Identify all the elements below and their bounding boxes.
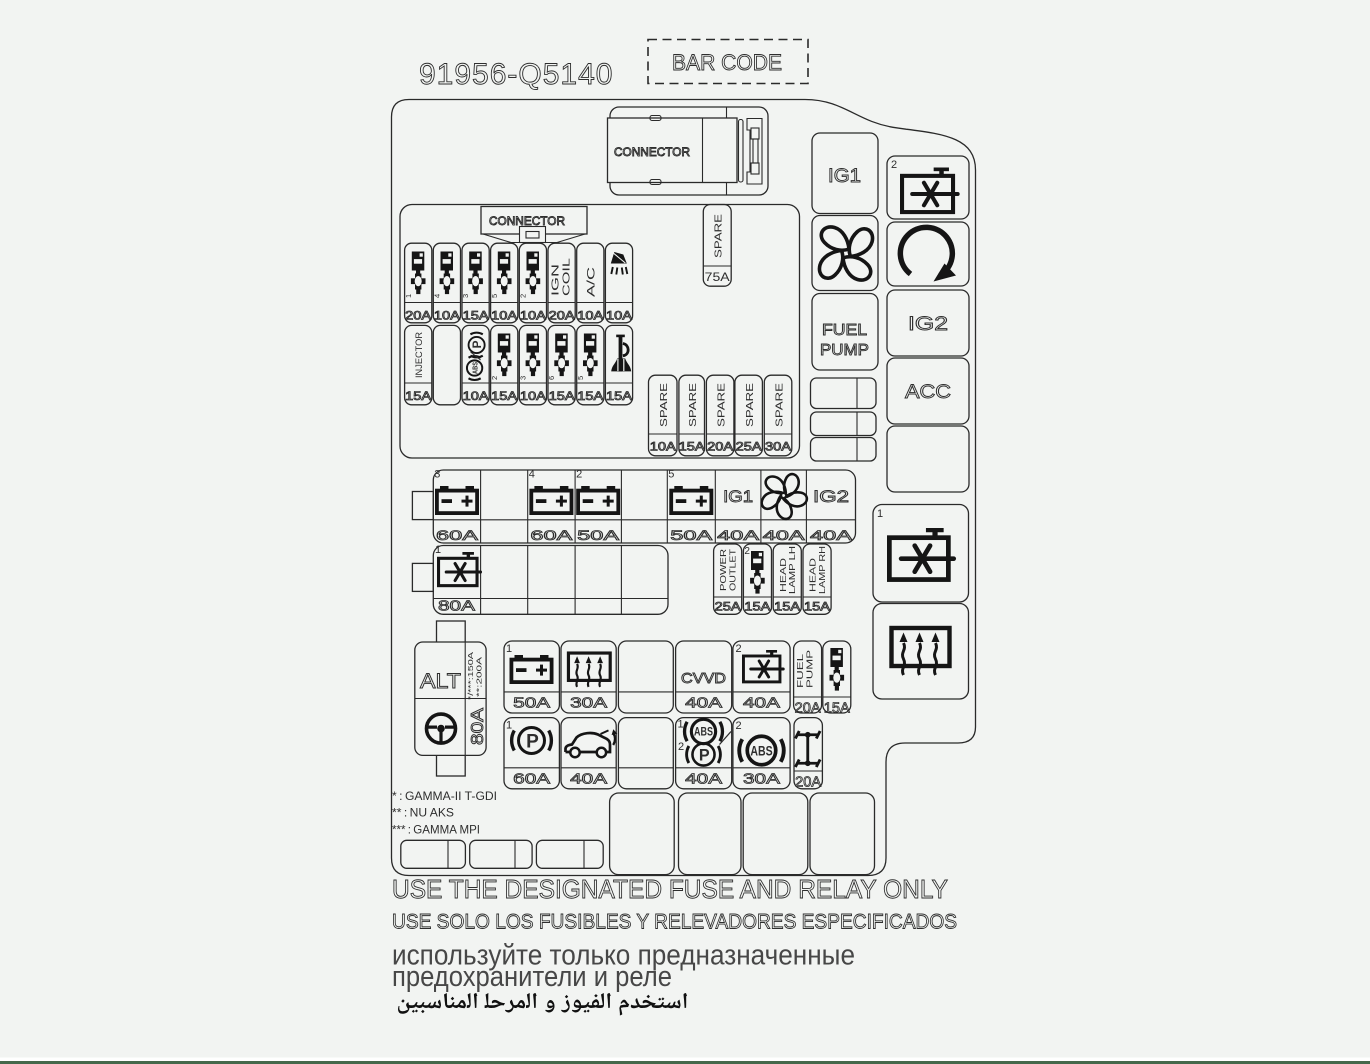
svg-text:2: 2 <box>736 720 742 732</box>
svg-text:25A: 25A <box>736 442 762 454</box>
svg-text:IG1: IG1 <box>828 166 861 187</box>
svg-text:80A: 80A <box>438 599 475 615</box>
svg-text:15A: 15A <box>804 602 830 614</box>
svg-text:50A: 50A <box>577 527 620 543</box>
svg-text:20A: 20A <box>549 311 575 323</box>
svg-text:1: 1 <box>435 544 441 556</box>
svg-text:SPARE: SPARE <box>687 383 699 427</box>
svg-text:30A: 30A <box>743 771 780 787</box>
svg-text:15A: 15A <box>491 391 517 403</box>
svg-text:60A: 60A <box>436 527 479 543</box>
svg-text:15A: 15A <box>463 311 489 323</box>
svg-text:COIL: COIL <box>562 257 573 296</box>
svg-text:CONNECTOR: CONNECTOR <box>614 145 690 159</box>
svg-text:IG2: IG2 <box>908 314 948 335</box>
svg-text:60A: 60A <box>530 527 573 543</box>
svg-text:40A: 40A <box>717 527 760 543</box>
svg-text:5: 5 <box>576 376 585 380</box>
svg-text:3: 3 <box>461 294 470 298</box>
svg-text:15A: 15A <box>744 602 770 614</box>
svg-text:15A: 15A <box>679 442 705 454</box>
svg-text:1: 1 <box>506 643 512 655</box>
svg-text:4: 4 <box>433 294 442 298</box>
svg-text:USE THE DESIGNATED FUSE AND RE: USE THE DESIGNATED FUSE AND RELAY ONLY <box>392 874 948 904</box>
svg-text:2: 2 <box>519 294 528 298</box>
svg-text:40A: 40A <box>685 771 722 787</box>
svg-text:2: 2 <box>678 741 684 753</box>
svg-text:* : GAMMA-II T-GDI: * : GAMMA-II T-GDI <box>392 791 497 803</box>
svg-text:2: 2 <box>490 376 499 380</box>
svg-text:40A: 40A <box>743 695 780 711</box>
svg-text:10A: 10A <box>606 311 632 323</box>
svg-text:HEAD: HEAD <box>808 558 818 592</box>
svg-text:40A: 40A <box>763 527 806 543</box>
svg-text:15A: 15A <box>577 391 603 403</box>
svg-text:FUEL: FUEL <box>822 322 867 339</box>
svg-text:POWER: POWER <box>718 549 728 591</box>
svg-text:30A: 30A <box>765 442 791 454</box>
svg-text:** : NU AKS: ** : NU AKS <box>392 808 454 820</box>
svg-text:20A: 20A <box>405 311 431 323</box>
svg-text:1: 1 <box>404 294 413 298</box>
svg-text:2: 2 <box>891 159 897 171</box>
svg-text:A/C: A/C <box>585 267 597 297</box>
svg-text:25A: 25A <box>715 602 741 614</box>
svg-text:10A: 10A <box>650 442 676 454</box>
svg-text:60A: 60A <box>513 771 550 787</box>
svg-text:10A: 10A <box>520 311 546 323</box>
svg-text:15A: 15A <box>606 391 632 403</box>
svg-text:2: 2 <box>576 469 582 481</box>
svg-text:**:200A: **:200A <box>475 657 484 697</box>
svg-text:CONNECTOR: CONNECTOR <box>489 214 565 228</box>
svg-text:CVVD: CVVD <box>681 671 726 687</box>
svg-text:SPARE: SPARE <box>744 383 756 427</box>
svg-text:SPARE: SPARE <box>658 383 670 427</box>
svg-text:1: 1 <box>678 719 684 731</box>
svg-text:IG1: IG1 <box>723 487 753 506</box>
svg-text:SPARE: SPARE <box>716 383 728 427</box>
svg-text:1: 1 <box>877 508 883 520</box>
svg-text:5: 5 <box>490 294 499 298</box>
svg-text:INJECTOR: INJECTOR <box>414 331 424 378</box>
svg-text:2: 2 <box>736 643 742 655</box>
svg-text:SPARE: SPARE <box>713 214 725 258</box>
svg-text:FUEL: FUEL <box>795 654 805 688</box>
svg-text:91956-Q5140: 91956-Q5140 <box>419 58 614 91</box>
svg-text:50A: 50A <box>670 527 713 543</box>
svg-text:USE SOLO LOS FUSIBLES Y RELEVA: USE SOLO LOS FUSIBLES Y RELEVADORES ESPE… <box>392 911 957 934</box>
svg-text:20A: 20A <box>795 775 821 791</box>
svg-text:10A: 10A <box>520 391 546 403</box>
svg-text:*** : GAMMA MPI: *** : GAMMA MPI <box>392 825 480 837</box>
svg-text:10A: 10A <box>577 311 603 323</box>
svg-text:15A: 15A <box>774 602 800 614</box>
svg-text:20A: 20A <box>795 701 821 717</box>
svg-text:75A: 75A <box>705 272 730 284</box>
svg-text:50A: 50A <box>513 695 550 711</box>
svg-text:IG2: IG2 <box>813 487 849 506</box>
svg-text:1: 1 <box>506 720 512 732</box>
svg-text:20A: 20A <box>707 442 733 454</box>
svg-text:15A: 15A <box>824 701 850 717</box>
svg-text:40A: 40A <box>810 527 853 543</box>
svg-text:SPARE: SPARE <box>774 383 786 427</box>
svg-text:30A: 30A <box>570 695 607 711</box>
svg-text:15A: 15A <box>549 391 575 403</box>
svg-text:LAMP LH: LAMP LH <box>787 546 797 594</box>
svg-text:PUMP: PUMP <box>805 649 815 688</box>
svg-text:ACC: ACC <box>905 382 951 403</box>
svg-text:LAMP RH: LAMP RH <box>817 546 827 594</box>
svg-text:3: 3 <box>434 469 440 481</box>
svg-text:ALT: ALT <box>420 670 461 693</box>
svg-text:предохранители и реле: предохранители и реле <box>392 961 672 993</box>
svg-text:IGN: IGN <box>551 264 562 296</box>
svg-text:2: 2 <box>744 546 750 557</box>
svg-text:40A: 40A <box>685 695 722 711</box>
svg-text:3: 3 <box>519 376 528 380</box>
svg-text:4: 4 <box>529 469 535 481</box>
svg-text:80A: 80A <box>467 708 487 745</box>
svg-text:5: 5 <box>668 469 674 481</box>
svg-text:6: 6 <box>547 376 556 380</box>
svg-text:10A: 10A <box>434 311 460 323</box>
svg-text:40A: 40A <box>570 771 607 787</box>
svg-text:BAR CODE: BAR CODE <box>672 50 782 75</box>
svg-text:15A: 15A <box>405 391 431 403</box>
svg-text:PUMP: PUMP <box>820 342 869 359</box>
svg-text:10A: 10A <box>491 311 517 323</box>
svg-text:OUTLET: OUTLET <box>728 549 738 591</box>
svg-text:10A: 10A <box>463 391 489 403</box>
